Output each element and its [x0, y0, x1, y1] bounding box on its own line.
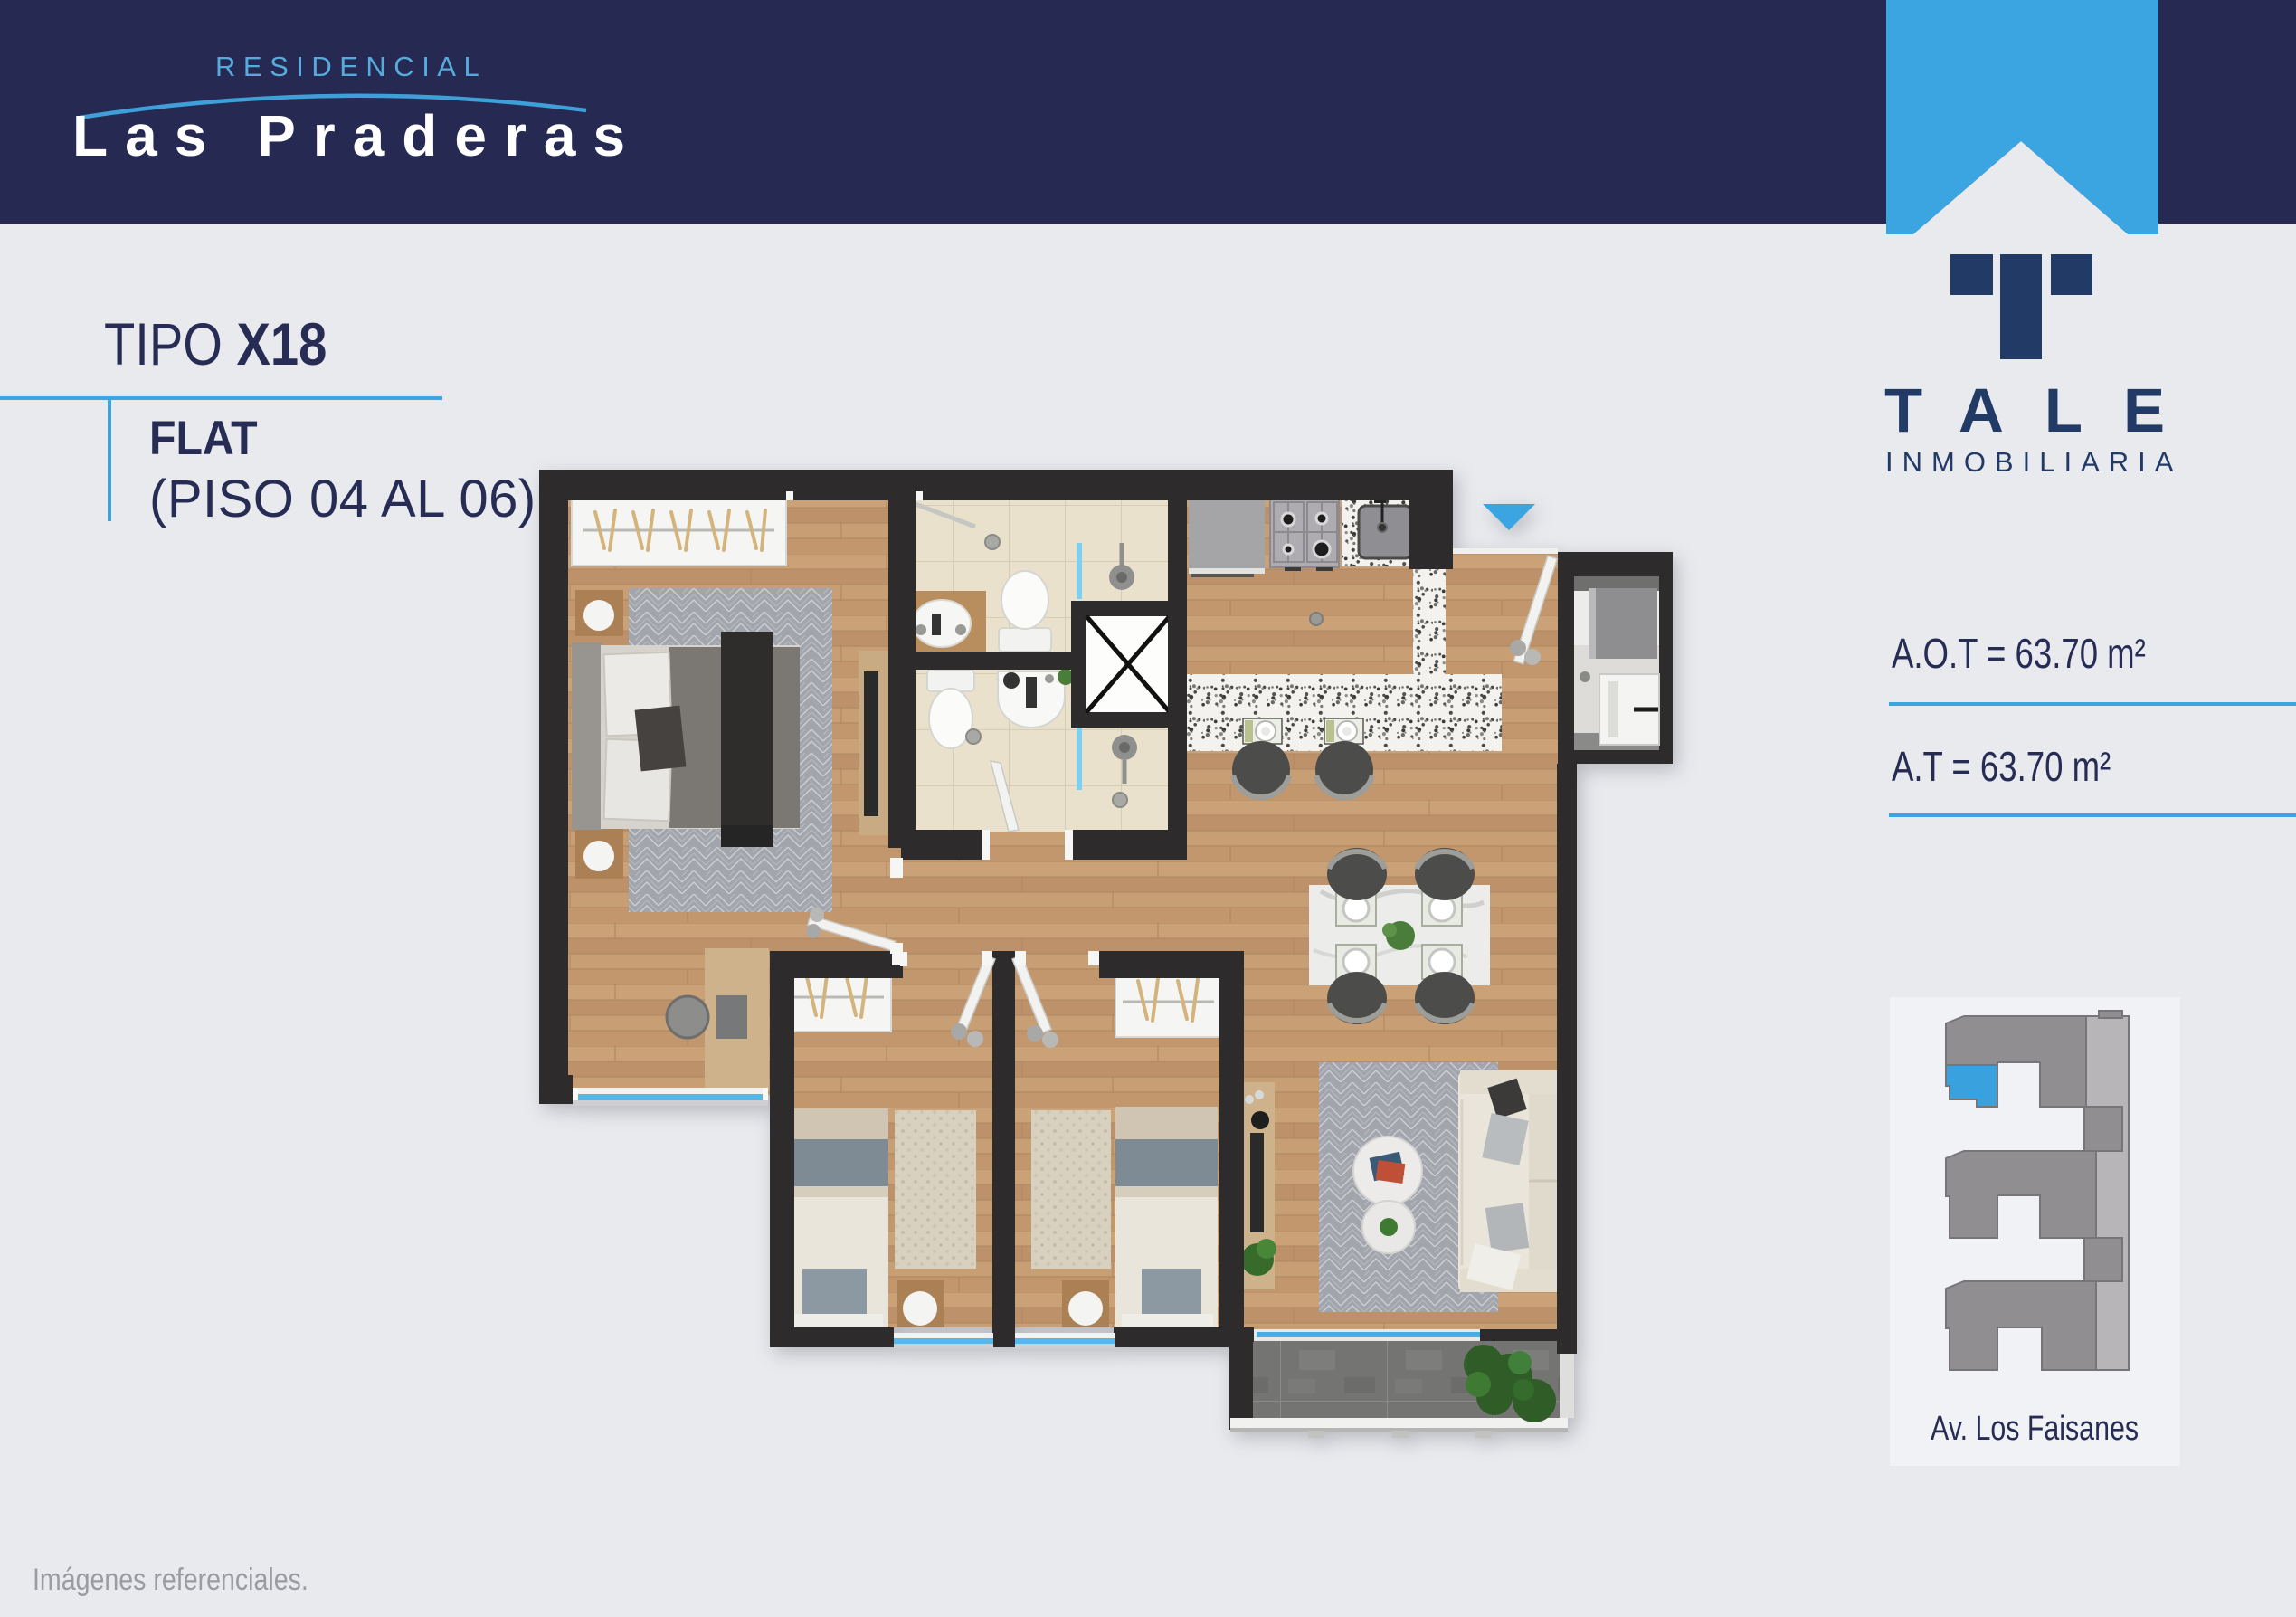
svg-text:RESIDENCIAL: RESIDENCIAL: [215, 51, 487, 82]
svg-text:Las Praderas: Las Praderas: [72, 103, 642, 168]
svg-text:TALE: TALE: [1884, 376, 2189, 445]
svg-text:INMOBILIARIA: INMOBILIARIA: [1885, 446, 2182, 478]
svg-text:Av. Los Faisanes: Av. Los Faisanes: [1931, 1410, 2139, 1448]
